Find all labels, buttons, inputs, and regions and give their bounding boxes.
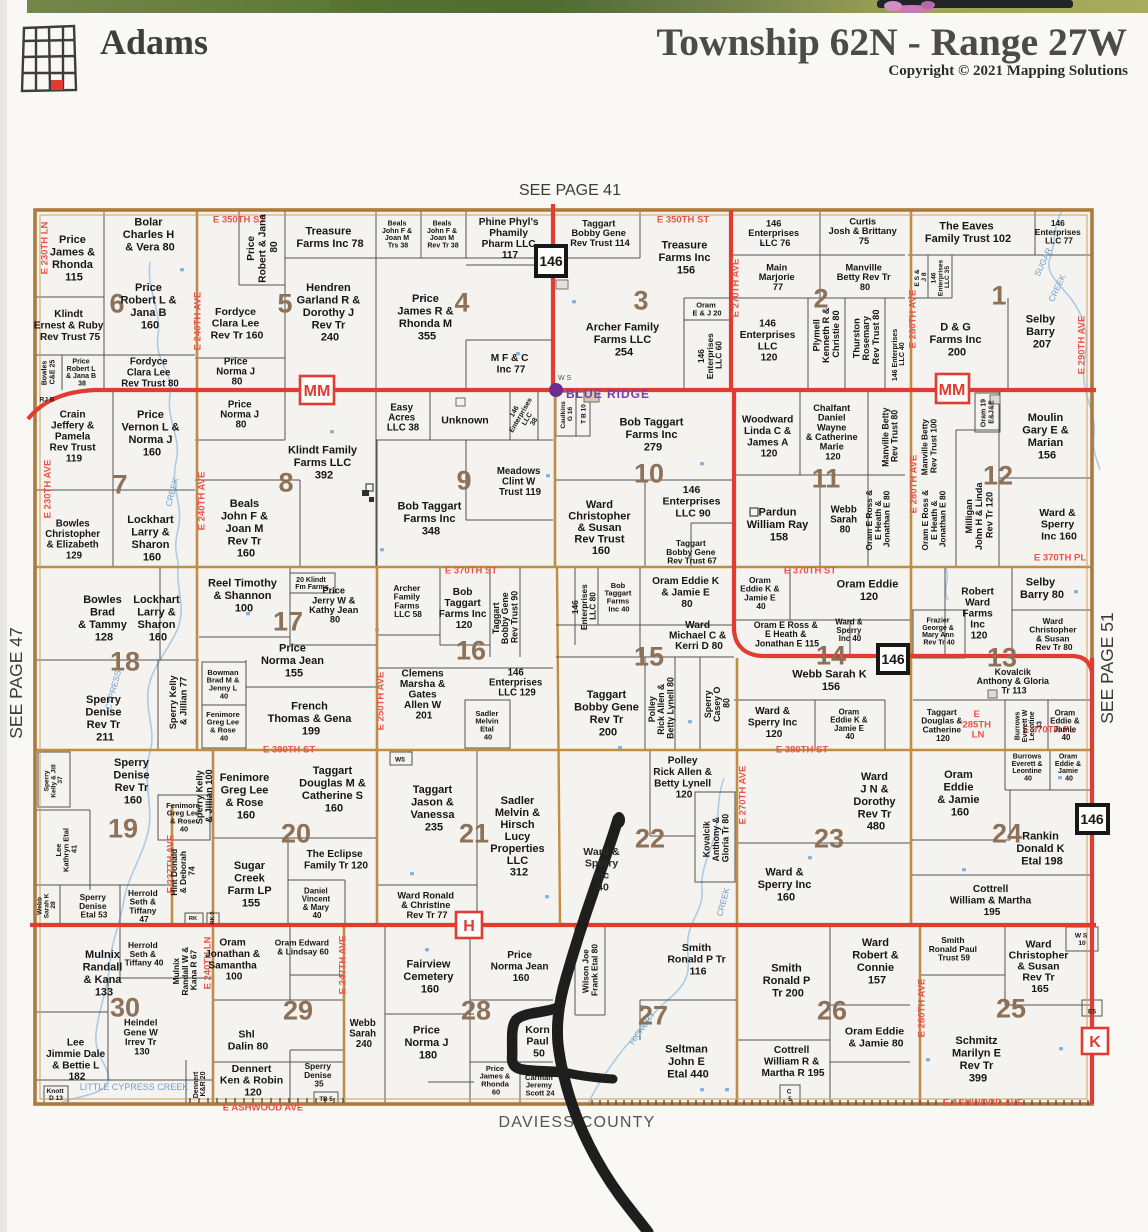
- svg-text:E 250TH AVE: E 250TH AVE: [375, 672, 386, 731]
- svg-text:Copyright © 2021 Mapping Solut: Copyright © 2021 Mapping Solutions: [888, 63, 1128, 79]
- svg-text:Unknown: Unknown: [441, 415, 488, 427]
- svg-text:E ASHWOOD AVE: E ASHWOOD AVE: [943, 1097, 1023, 1108]
- svg-text:Bowles C&E 25: Bowles C&E 25: [41, 359, 56, 386]
- svg-text:E ASHWOOD AVE: E ASHWOOD AVE: [223, 1102, 303, 1113]
- svg-text:Oram Edward & Lindsay 60: Oram Edward & Lindsay 60: [275, 938, 332, 957]
- svg-text:Fordyce Clara Lee Rev Tr 160: Fordyce Clara Lee Rev Tr 160: [211, 306, 264, 342]
- svg-text:3: 3: [633, 285, 648, 315]
- svg-text:Manville Betty Rev Trust 100: Manville Betty Rev Trust 100: [920, 417, 939, 475]
- svg-text:E 370TH ST: E 370TH ST: [445, 565, 497, 576]
- svg-text:146: 146: [539, 253, 563, 269]
- svg-text:E 247TH AVE: E 247TH AVE: [337, 936, 348, 995]
- svg-text:15: 15: [634, 641, 664, 671]
- svg-text:E 280TH AVE: E 280TH AVE: [907, 290, 918, 349]
- svg-text:Rankin Donald K Etal 198: Rankin Donald K Etal 198: [1016, 830, 1067, 867]
- svg-text:MM: MM: [304, 383, 331, 400]
- svg-text:Oram E & J 20: Oram E & J 20: [692, 301, 721, 318]
- svg-text:E 350TH ST: E 350TH ST: [657, 214, 709, 225]
- svg-text:25: 25: [996, 993, 1026, 1023]
- svg-text:8: 8: [278, 467, 293, 497]
- svg-text:SEE PAGE 41: SEE PAGE 41: [519, 182, 621, 199]
- svg-text:Sperry Denise Etal 53: Sperry Denise Etal 53: [79, 892, 109, 919]
- svg-text:E 370TH PL: E 370TH PL: [1034, 552, 1086, 563]
- svg-text:RJ B: RJ B: [39, 396, 54, 403]
- svg-text:9: 9: [456, 465, 471, 495]
- svg-text:146: 146: [1080, 811, 1104, 827]
- svg-text:RK 5: RK 5: [210, 911, 216, 925]
- svg-text:E 290TH AVE: E 290TH AVE: [1076, 316, 1087, 375]
- svg-text:W5: W5: [395, 756, 405, 763]
- svg-text:Archer Family Farms LLC 58: Archer Family Farms LLC 58: [393, 583, 422, 619]
- svg-text:Kovalcik Anthony & Gloria Tr 8: Kovalcik Anthony & Gloria Tr 80: [701, 814, 730, 863]
- svg-text:E 230TH LN: E 230TH LN: [39, 221, 50, 274]
- svg-text:Knott D 13: Knott D 13: [46, 1088, 65, 1102]
- svg-text:Dennert K&R 20: Dennert K&R 20: [193, 1070, 207, 1099]
- svg-text:SEE PAGE 51: SEE PAGE 51: [1097, 612, 1117, 724]
- svg-text:Sperry Kelly & Jillian 77: Sperry Kelly & Jillian 77: [168, 673, 188, 729]
- svg-text:E 230TH AVE: E 230TH AVE: [42, 460, 53, 519]
- svg-text:26: 26: [817, 995, 847, 1025]
- svg-text:7: 7: [112, 469, 127, 499]
- svg-text:H: H: [463, 918, 475, 935]
- svg-text:11: 11: [812, 463, 841, 493]
- svg-text:Adams: Adams: [100, 22, 208, 62]
- svg-text:Meadows Clint W Trust 119: Meadows Clint W Trust 119: [497, 466, 543, 498]
- svg-text:Oram 19 E&J&E: Oram 19 E&J&E: [981, 397, 996, 427]
- svg-text:19: 19: [108, 813, 138, 843]
- svg-text:23: 23: [814, 823, 844, 853]
- svg-text:E 270TH AVE: E 270TH AVE: [737, 766, 748, 825]
- svg-text:18: 18: [110, 646, 140, 676]
- svg-text:27: 27: [638, 1000, 668, 1030]
- svg-text:Frazier George & Mary Ann Rev: Frazier George & Mary Ann Rev Tr 40: [922, 617, 956, 646]
- svg-text:Township 62N - Range 27W: Township 62N - Range 27W: [657, 20, 1127, 64]
- svg-text:E 240TH AVE: E 240TH AVE: [192, 292, 203, 351]
- svg-text:E 380TH ST: E 380TH ST: [776, 744, 828, 755]
- svg-text:RK: RK: [189, 916, 198, 922]
- svg-text:MM: MM: [939, 382, 966, 399]
- svg-text:E 280TH AVE: E 280TH AVE: [916, 979, 927, 1038]
- svg-text:Manville Betty Rev Trust 80: Manville Betty Rev Trust 80: [880, 405, 899, 467]
- svg-text:Seltman John E Etal 440: Seltman John E Etal 440: [665, 1043, 711, 1080]
- svg-text:Thurston Rosemary Rev Trust 80: Thurston Rosemary Rev Trust 80: [852, 310, 881, 365]
- svg-text:Selby Barry 80: Selby Barry 80: [1020, 577, 1064, 601]
- svg-text:29: 29: [283, 995, 313, 1025]
- svg-text:E 380TH ST: E 380TH ST: [263, 744, 315, 755]
- svg-text:T B 10: T B 10: [580, 404, 587, 424]
- svg-text:E 370TH ST: E 370TH ST: [784, 565, 836, 576]
- svg-text:28: 28: [461, 995, 491, 1025]
- svg-text:Carman Jeremy Scott 24: Carman Jeremy Scott 24: [525, 1073, 555, 1098]
- svg-text:The Eclipse Family Tr 120: The Eclipse Family Tr 120: [304, 849, 368, 871]
- svg-text:16: 16: [456, 635, 486, 665]
- svg-text:E 240TH AVE: E 240TH AVE: [196, 472, 207, 531]
- svg-text:Herrold Seth & Tiffany 40: Herrold Seth & Tiffany 40: [125, 940, 164, 967]
- svg-text:SEE PAGE 47: SEE PAGE 47: [6, 627, 26, 739]
- svg-text:BLUE RIDGE: BLUE RIDGE: [566, 387, 650, 401]
- svg-text:LITTLE CYPRESS CREEK: LITTLE CYPRESS CREEK: [80, 1082, 189, 1092]
- svg-text:4: 4: [454, 287, 469, 317]
- svg-text:M F & C Inc 77: M F & C Inc 77: [491, 353, 531, 375]
- svg-text:12: 12: [983, 460, 1013, 490]
- svg-text:21: 21: [459, 818, 489, 848]
- svg-text:Treasure Farms Inc 78: Treasure Farms Inc 78: [296, 226, 363, 250]
- svg-text:22: 22: [635, 823, 665, 853]
- svg-text:5: 5: [277, 288, 292, 318]
- svg-text:1: 1: [991, 280, 1006, 310]
- svg-text:17: 17: [273, 606, 303, 636]
- svg-text:20: 20: [281, 818, 311, 848]
- svg-text:Ward & Sperry Inc 160: Ward & Sperry Inc 160: [1039, 507, 1078, 543]
- svg-text:Fordyce Clara Lee Rev Trust 80: Fordyce Clara Lee Rev Trust 80: [121, 356, 179, 389]
- svg-text:Ward & Sperry Inc 40: Ward & Sperry Inc 40: [835, 617, 865, 643]
- svg-text:W S: W S: [558, 375, 572, 382]
- svg-text:14: 14: [816, 640, 846, 670]
- svg-text:146: 146: [881, 651, 905, 667]
- svg-text:K: K: [1089, 1034, 1101, 1051]
- svg-text:10: 10: [634, 458, 664, 488]
- svg-text:Oram Eddie & Jamie 80: Oram Eddie & Jamie 80: [845, 1026, 907, 1050]
- svg-text:E 280TH AVE: E 280TH AVE: [908, 455, 919, 514]
- svg-text:TB 5: TB 5: [319, 1096, 333, 1103]
- svg-text:E 270TH AVE: E 270TH AVE: [730, 259, 741, 318]
- svg-text:Wilson Joe Frank Etal 80: Wilson Joe Frank Etal 80: [580, 944, 599, 996]
- svg-text:E5: E5: [1088, 1008, 1096, 1015]
- svg-text:Easy Acres LLC 38: Easy Acres LLC 38: [387, 402, 420, 433]
